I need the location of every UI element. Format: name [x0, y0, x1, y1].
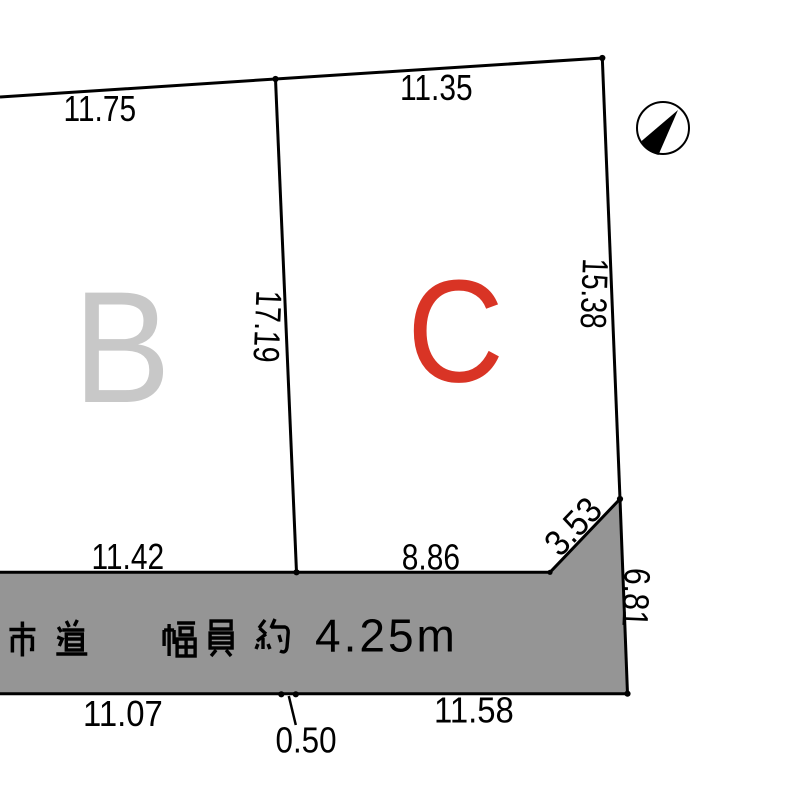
- svg-text:6.81: 6.81: [614, 567, 657, 628]
- svg-text:11.42: 11.42: [92, 537, 165, 577]
- svg-text:11.75: 11.75: [64, 89, 137, 129]
- svg-text:11.35: 11.35: [400, 68, 473, 108]
- svg-text:17.19: 17.19: [246, 290, 290, 364]
- svg-text:C: C: [407, 249, 504, 412]
- svg-text:11.07: 11.07: [83, 694, 163, 734]
- svg-text:4.25m: 4.25m: [315, 610, 458, 662]
- svg-text:8.86: 8.86: [402, 538, 460, 578]
- svg-text:15.38: 15.38: [573, 258, 616, 330]
- svg-text:0.50: 0.50: [276, 720, 337, 761]
- svg-text:11.58: 11.58: [434, 691, 514, 731]
- svg-text:B: B: [73, 259, 171, 436]
